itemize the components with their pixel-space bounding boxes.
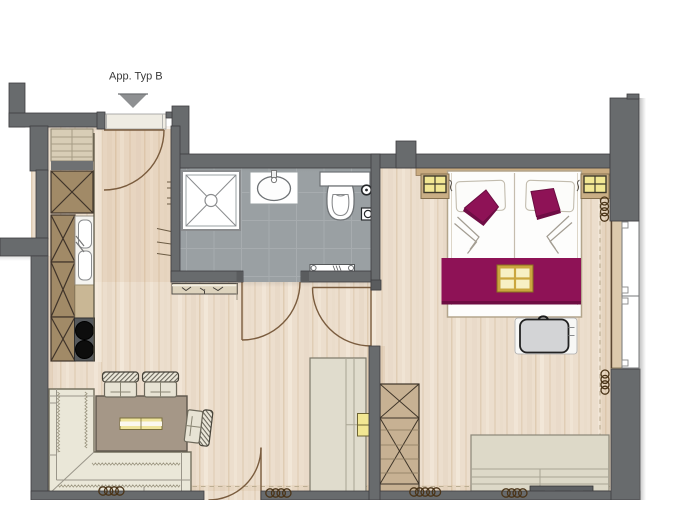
svg-text:App. Typ B: App. Typ B xyxy=(109,71,163,83)
